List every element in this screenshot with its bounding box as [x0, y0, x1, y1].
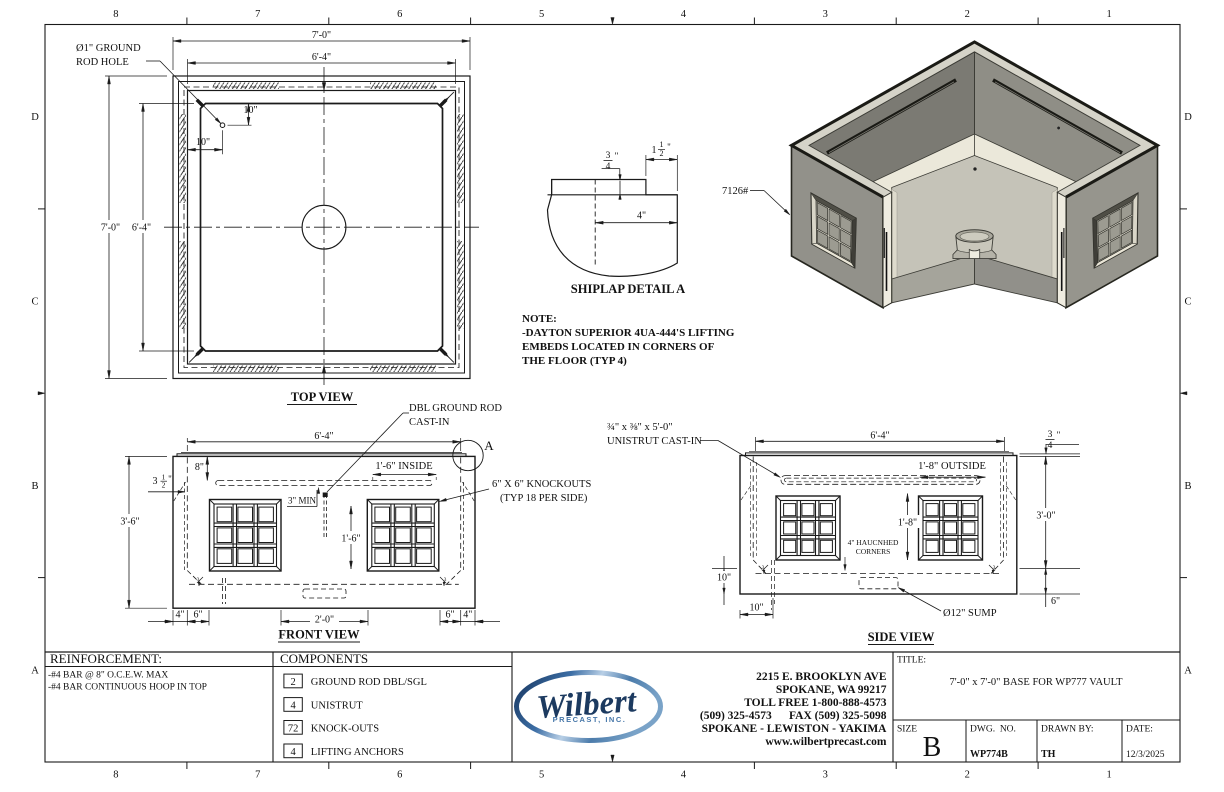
- svg-text:7'-0": 7'-0": [312, 30, 331, 41]
- svg-text:B: B: [1184, 481, 1191, 492]
- svg-text:DRAWN BY:: DRAWN BY:: [1041, 725, 1093, 735]
- svg-text:A: A: [484, 438, 494, 453]
- svg-text:6: 6: [397, 770, 402, 781]
- svg-text:3: 3: [1048, 430, 1053, 440]
- svg-text:10": 10": [244, 105, 258, 116]
- svg-text:7'-0": 7'-0": [101, 223, 120, 234]
- svg-text:": ": [1057, 431, 1061, 441]
- svg-text:-#4 BAR CONTINUOUS HOOP IN TOP: -#4 BAR CONTINUOUS HOOP IN TOP: [48, 683, 207, 693]
- svg-text:LIFTING ANCHORS: LIFTING ANCHORS: [311, 747, 404, 758]
- svg-text:-#4 BAR @ 8" O.C.E.W. MAX: -#4 BAR @ 8" O.C.E.W. MAX: [48, 671, 168, 681]
- svg-text:Ø1" GROUND: Ø1" GROUND: [76, 43, 141, 54]
- svg-text:CAST-IN: CAST-IN: [409, 417, 450, 428]
- svg-text:7: 7: [255, 770, 260, 781]
- svg-text:10": 10": [196, 137, 210, 148]
- svg-text:4: 4: [290, 747, 296, 758]
- svg-text:8": 8": [195, 462, 204, 473]
- svg-text:2: 2: [162, 481, 166, 490]
- svg-text:B: B: [31, 481, 38, 492]
- svg-text:6'-4": 6'-4": [132, 223, 151, 234]
- svg-text:DBL GROUND ROD: DBL GROUND ROD: [409, 403, 502, 414]
- svg-text:1: 1: [1106, 770, 1111, 781]
- svg-text:-DAYTON SUPERIOR 4UA-444'S LIF: -DAYTON SUPERIOR 4UA-444'S LIFTING: [522, 327, 735, 339]
- svg-text:3: 3: [823, 770, 828, 781]
- svg-text:1'-6": 1'-6": [341, 534, 360, 545]
- svg-text:10": 10": [749, 603, 763, 614]
- svg-text:": ": [667, 142, 671, 152]
- svg-text:3: 3: [606, 151, 611, 161]
- svg-text:SHIPLAP DETAIL A: SHIPLAP DETAIL A: [571, 282, 685, 296]
- svg-text:2'-0": 2'-0": [315, 615, 334, 626]
- svg-text:4": 4": [637, 211, 646, 222]
- svg-text:5: 5: [539, 9, 544, 20]
- svg-text:TOP VIEW: TOP VIEW: [291, 390, 354, 404]
- svg-text:7126#: 7126#: [722, 186, 749, 197]
- svg-text:(TYP 18 PER SIDE): (TYP 18 PER SIDE): [500, 493, 588, 504]
- svg-text:Ø12" SUMP: Ø12" SUMP: [943, 608, 997, 619]
- svg-text:6" X 6" KNOCKOUTS: 6" X 6" KNOCKOUTS: [492, 479, 591, 490]
- svg-text:GROUND ROD DBL/SGL: GROUND ROD DBL/SGL: [311, 677, 427, 688]
- svg-text:2: 2: [965, 9, 970, 20]
- svg-text:UNISTRUT CAST-IN: UNISTRUT CAST-IN: [607, 436, 702, 447]
- svg-text:6'-4": 6'-4": [312, 52, 331, 63]
- svg-text:PRECAST, INC.: PRECAST, INC.: [553, 715, 627, 724]
- svg-text:6'-4": 6'-4": [314, 431, 333, 442]
- svg-text:THE FLOOR (TYP 4): THE FLOOR (TYP 4): [522, 355, 627, 367]
- svg-text:EMBEDS LOCATED IN CORNERS OF: EMBEDS LOCATED IN CORNERS OF: [522, 341, 715, 353]
- svg-text:C: C: [31, 297, 38, 308]
- svg-text:1'-8": 1'-8": [898, 518, 917, 529]
- svg-text:DATE:: DATE:: [1126, 725, 1153, 735]
- svg-text:CORNERS: CORNERS: [856, 547, 891, 556]
- svg-text:SIZE: SIZE: [897, 725, 917, 735]
- svg-text:4": 4": [463, 610, 472, 621]
- svg-text:4: 4: [290, 700, 296, 711]
- svg-text:WP774B: WP774B: [970, 749, 1008, 760]
- svg-text:www.wilbertprecast.com: www.wilbertprecast.com: [765, 736, 887, 748]
- svg-text:SPOKANE, WA 99217: SPOKANE, WA 99217: [776, 684, 887, 696]
- svg-text:KNOCK-OUTS: KNOCK-OUTS: [311, 723, 379, 734]
- svg-text:72: 72: [288, 723, 299, 734]
- svg-text:3: 3: [823, 9, 828, 20]
- svg-text:2: 2: [290, 677, 295, 688]
- svg-text:UNISTRUT: UNISTRUT: [311, 700, 364, 711]
- svg-text:1: 1: [660, 140, 664, 149]
- svg-text:SPOKANE - LEWISTON - YAKIMA: SPOKANE - LEWISTON - YAKIMA: [702, 723, 888, 735]
- svg-text:SIDE VIEW: SIDE VIEW: [868, 630, 935, 644]
- svg-text:3" MIN: 3" MIN: [288, 496, 316, 506]
- svg-text:8: 8: [113, 9, 118, 20]
- svg-text:3'-0": 3'-0": [1036, 511, 1055, 522]
- svg-text:2215 E. BROOKLYN AVE: 2215 E. BROOKLYN AVE: [756, 671, 887, 683]
- svg-text:6": 6": [193, 610, 202, 621]
- svg-text:8: 8: [113, 770, 118, 781]
- svg-text:1: 1: [1106, 9, 1111, 20]
- svg-text:(509) 325-4573 FAX (509): (509) 325-4573 FAX (509) 325-5098: [700, 710, 887, 722]
- svg-text:7: 7: [255, 9, 260, 20]
- svg-text:4": 4": [175, 610, 184, 621]
- svg-text:3: 3: [153, 476, 158, 487]
- svg-text:4: 4: [1048, 441, 1053, 451]
- svg-text:NOTE:: NOTE:: [522, 313, 557, 325]
- svg-text:3'-6": 3'-6": [120, 517, 139, 528]
- svg-text:12/3/2025: 12/3/2025: [1126, 750, 1165, 760]
- svg-text:DWG. NO.: DWG. NO.: [970, 725, 1016, 735]
- svg-text:C: C: [1184, 297, 1191, 308]
- svg-text:A: A: [31, 665, 39, 676]
- svg-text:A: A: [1184, 665, 1192, 676]
- svg-text:¾" x ⅜" x 5'-0": ¾" x ⅜" x 5'-0": [607, 422, 673, 433]
- svg-text:": ": [168, 474, 172, 484]
- svg-text:7'-0" x 7'-0" BASE FOR WP777 V: 7'-0" x 7'-0" BASE FOR WP777 VAULT: [950, 677, 1124, 688]
- svg-text:TITLE:: TITLE:: [897, 656, 926, 666]
- svg-text:D: D: [31, 112, 39, 123]
- svg-text:TH: TH: [1041, 749, 1056, 760]
- svg-text:6'-4": 6'-4": [870, 430, 889, 441]
- svg-text:D: D: [1184, 112, 1192, 123]
- svg-text:4: 4: [606, 162, 611, 172]
- svg-text:TOLL FREE 1-800-888-4573: TOLL FREE 1-800-888-4573: [744, 697, 887, 709]
- svg-text:4: 4: [681, 9, 687, 20]
- svg-text:1: 1: [652, 145, 657, 156]
- svg-text:REINFORCEMENT:: REINFORCEMENT:: [50, 651, 162, 666]
- svg-text:COMPONENTS: COMPONENTS: [280, 651, 368, 666]
- svg-text:4" HAUCNHED: 4" HAUCNHED: [848, 538, 899, 547]
- svg-text:6: 6: [397, 9, 402, 20]
- svg-text:1'-6" INSIDE: 1'-6" INSIDE: [375, 461, 432, 472]
- svg-text:2: 2: [660, 149, 664, 158]
- svg-text:ROD HOLE: ROD HOLE: [76, 57, 129, 68]
- svg-text:10": 10": [717, 573, 731, 584]
- svg-text:5: 5: [539, 770, 544, 781]
- svg-text:B: B: [923, 732, 942, 763]
- svg-text:1'-8" OUTSIDE: 1'-8" OUTSIDE: [918, 461, 986, 472]
- svg-text:FRONT VIEW: FRONT VIEW: [278, 628, 360, 642]
- svg-text:4: 4: [681, 770, 687, 781]
- svg-text:": ": [615, 152, 619, 162]
- svg-text:6": 6": [1051, 596, 1060, 607]
- svg-text:2: 2: [965, 770, 970, 781]
- svg-text:6": 6": [445, 610, 454, 621]
